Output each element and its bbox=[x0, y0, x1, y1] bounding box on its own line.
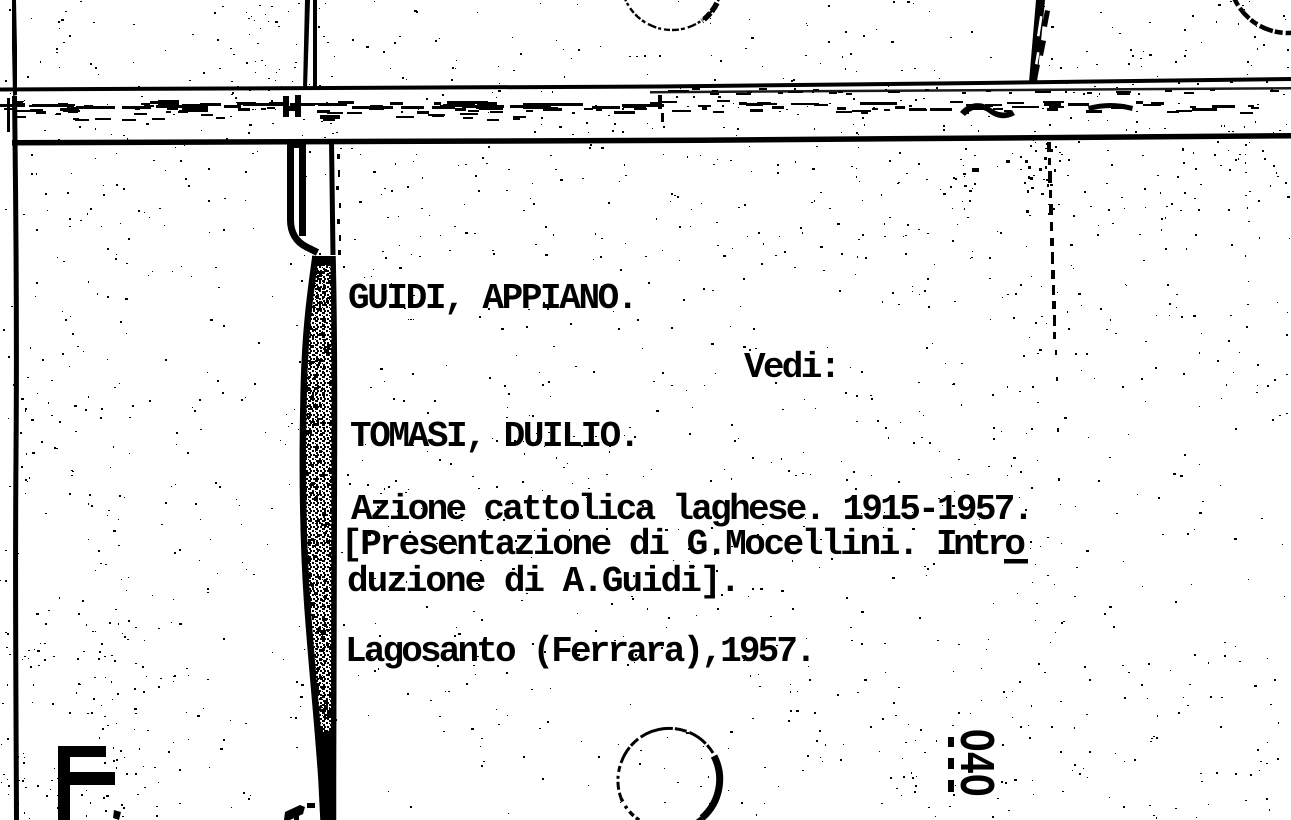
svg-text:[Presentazione di G.Mocellini.: [Presentazione di G.Mocellini. bbox=[341, 524, 917, 565]
svg-text:Intro: Intro bbox=[936, 524, 1024, 565]
svg-text:Lagosanto (Ferrara),1957.: Lagosanto (Ferrara),1957. bbox=[345, 631, 814, 672]
svg-text:duzione di A.Guidi].: duzione di A.Guidi]. bbox=[347, 561, 739, 602]
svg-text:Vedi:: Vedi: bbox=[744, 347, 839, 388]
svg-text:GUIDI, APPIANO.: GUIDI, APPIANO. bbox=[348, 278, 636, 319]
svg-text:TOMASI, DUILIO.: TOMASI, DUILIO. bbox=[350, 416, 638, 457]
